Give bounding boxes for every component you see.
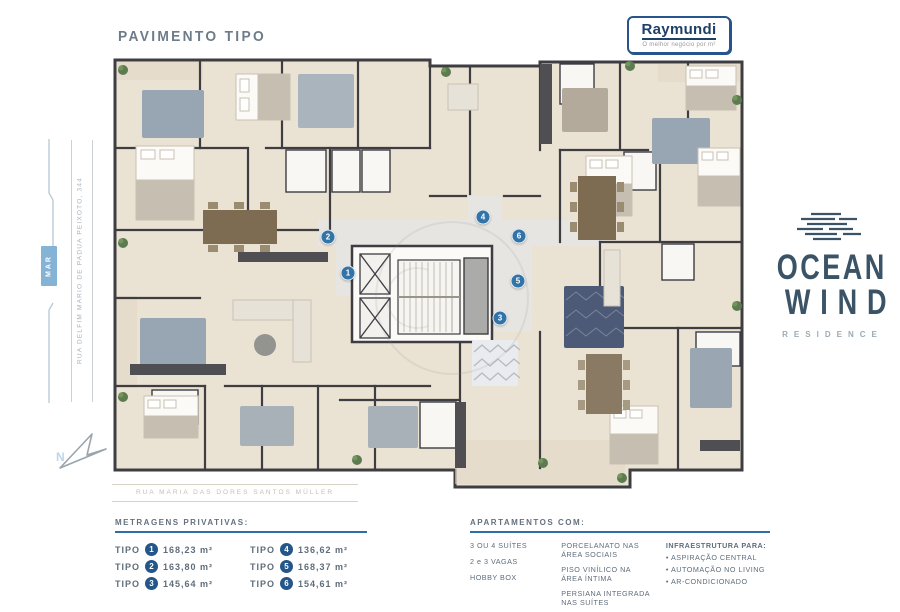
unit-marker-2: 2: [321, 230, 336, 245]
brochure-page: 1 2 3 4 5 6 PAVIMENTO TIPO Raymundi O me…: [0, 0, 900, 612]
building-name-line1: OCEAN: [777, 249, 884, 286]
metragens-item-4: TIPO 4 136,62 m²: [250, 541, 367, 558]
waves-icon: [791, 212, 869, 244]
street-bottom-label: RUA MARIA DAS DORES SANTOS MÜLLER: [112, 484, 358, 502]
tipo-number-badge: 3: [145, 577, 158, 590]
unit-marker-6: 6: [512, 229, 527, 244]
brand-name: Raymundi: [642, 22, 717, 40]
coffee-table: [254, 334, 276, 356]
street-left-label: RUA DELFIM MARIO DE PADUA PEIXOTO, 344: [69, 140, 91, 402]
street-left-line: [92, 140, 93, 402]
tipo-area: 168,37 m²: [298, 562, 348, 572]
tipo-label: TIPO: [115, 545, 140, 555]
infra-column: INFRAESTRUTURA PARA: • ASPIRAÇÃO CENTRAL…: [666, 541, 770, 612]
apartamentos-legend: APARTAMENTOS COM: 3 OU 4 SUÍTES 2 e 3 VA…: [470, 518, 770, 612]
brand-logo: Raymundi O melhor negócio por m²: [627, 16, 731, 54]
metragens-item-6: TIPO 6 154,61 m²: [250, 575, 367, 592]
building-subtitle: RESIDENCE: [765, 330, 895, 339]
features-column-2: PORCELANATO NAS ÁREA SOCIAIS PISO VINÍLI…: [561, 541, 650, 612]
infra-item: • AR-CONDICIONADO: [666, 577, 770, 586]
tipo-area: 136,62 m²: [298, 545, 348, 555]
feature-item: HOBBY BOX: [470, 573, 545, 582]
tipo-label: TIPO: [250, 545, 275, 555]
tipo-number-badge: 2: [145, 560, 158, 573]
dining-table: [570, 176, 624, 240]
infra-item: • AUTOMAÇÃO NO LIVING: [666, 565, 770, 574]
metragens-title: METRAGENS PRIVATIVAS:: [115, 518, 367, 527]
metragens-item-3: TIPO 3 145,64 m²: [115, 575, 232, 592]
feature-item: 3 OU 4 SUÍTES: [470, 541, 545, 550]
tipo-area: 168,23 m²: [163, 545, 213, 555]
divider: [470, 531, 770, 533]
metragens-legend: METRAGENS PRIVATIVAS: TIPO 1 168,23 m² T…: [115, 518, 367, 592]
features-column-1: 3 OU 4 SUÍTES 2 e 3 VAGAS HOBBY BOX: [470, 541, 545, 612]
infra-item: • ASPIRAÇÃO CENTRAL: [666, 553, 770, 562]
feature-item: PISO VINÍLICO NA ÁREA ÍNTIMA: [561, 565, 650, 583]
feature-item: PERSIANA INTEGRADA NAS SUÍTES: [561, 589, 650, 607]
tipo-number-badge: 4: [280, 543, 293, 556]
north-label: N: [56, 450, 65, 464]
chevron-rug: [472, 340, 520, 386]
metragens-item-1: TIPO 1 168,23 m²: [115, 541, 232, 558]
metragens-item-2: TIPO 2 163,80 m²: [115, 558, 232, 575]
tipo-area: 145,64 m²: [163, 579, 213, 589]
tipo-number-badge: 6: [280, 577, 293, 590]
unit-marker-1: 1: [341, 266, 356, 281]
apartamentos-title: APARTAMENTOS COM:: [470, 518, 770, 527]
tipo-area: 154,61 m²: [298, 579, 348, 589]
page-title: PAVIMENTO TIPO: [118, 28, 266, 45]
building-name-line2: WIND: [777, 283, 884, 322]
tipo-label: TIPO: [115, 579, 140, 589]
infra-title: INFRAESTRUTURA PARA:: [666, 541, 770, 550]
building-logo: OCEAN WIND RESIDENCE: [765, 212, 895, 339]
brand-tagline: O melhor negócio por m²: [642, 42, 715, 48]
shaft: [464, 258, 488, 334]
tipo-label: TIPO: [250, 562, 275, 572]
tipo-number-badge: 5: [280, 560, 293, 573]
feature-item: PORCELANATO NAS ÁREA SOCIAIS: [561, 541, 650, 559]
tipo-number-badge: 1: [145, 543, 158, 556]
metragens-item-5: TIPO 5 168,37 m²: [250, 558, 367, 575]
unit-marker-3: 3: [493, 311, 508, 326]
tipo-label: TIPO: [115, 562, 140, 572]
divider: [115, 531, 367, 533]
unit-marker-4: 4: [476, 210, 491, 225]
feature-item: 2 e 3 VAGAS: [470, 557, 545, 566]
tipo-label: TIPO: [250, 579, 275, 589]
north-arrow-icon: [50, 424, 114, 474]
tipo-area: 163,80 m²: [163, 562, 213, 572]
sea-badge: MAR: [41, 246, 57, 286]
unit-marker-5: 5: [511, 274, 526, 289]
stairs-icon: [398, 260, 460, 334]
